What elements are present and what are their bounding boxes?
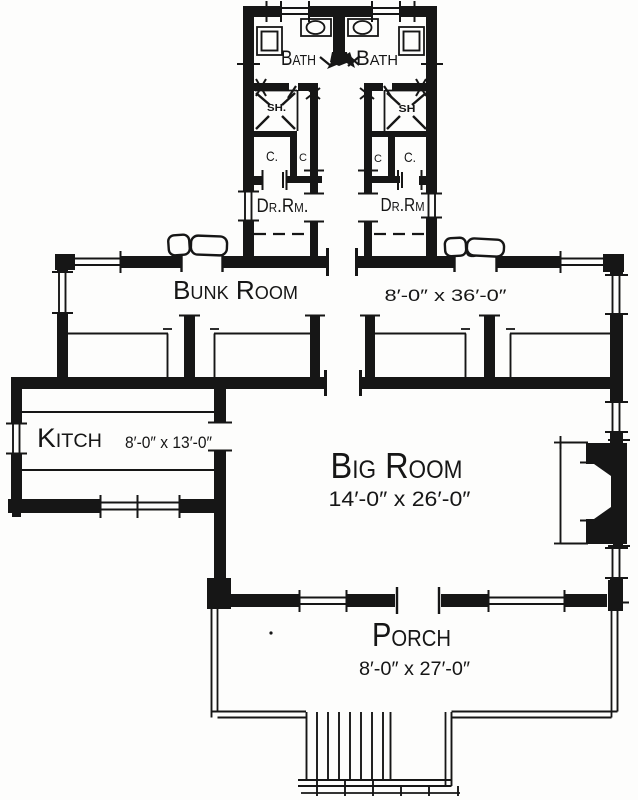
svg-text:Dr.Rm: Dr.Rm: [381, 195, 425, 215]
svg-text:SH: SH: [399, 104, 416, 115]
svg-text:8′-0″ x 27′-0″: 8′-0″ x 27′-0″: [359, 659, 470, 680]
svg-text:Bath: Bath: [281, 47, 316, 70]
svg-text:Dr.Rm.: Dr.Rm.: [257, 196, 309, 217]
svg-text:Porch: Porch: [372, 616, 451, 653]
svg-text:Bath: Bath: [356, 47, 398, 70]
svg-text:8′-0″ x 36′-0″: 8′-0″ x 36′-0″: [385, 286, 507, 305]
svg-text:C.: C.: [404, 149, 416, 165]
svg-text:14′-0″ x 26′-0″: 14′-0″ x 26′-0″: [329, 488, 472, 511]
svg-text:Bunk Room: Bunk Room: [173, 275, 298, 305]
svg-text:Big Room: Big Room: [331, 445, 463, 486]
svg-text:C: C: [374, 153, 382, 165]
svg-text:SH.: SH.: [267, 103, 286, 114]
svg-text:C: C: [299, 152, 307, 164]
svg-text:Kitch: Kitch: [37, 423, 102, 453]
svg-text:8′-0″ x 13′-0″: 8′-0″ x 13′-0″: [125, 433, 212, 452]
svg-text:C.: C.: [266, 148, 278, 164]
